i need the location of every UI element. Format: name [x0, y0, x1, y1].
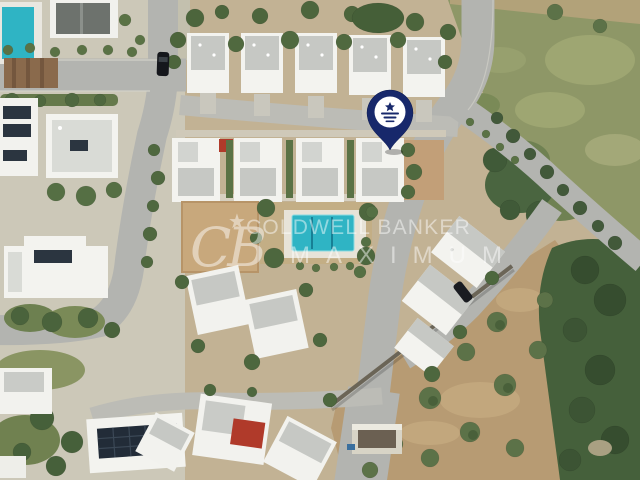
row2-villa	[172, 138, 220, 202]
car	[157, 52, 170, 76]
watermark-line2: MAXIMUM	[290, 242, 518, 269]
watermark-star-icon: ★	[228, 211, 246, 233]
row2-villa	[234, 138, 282, 202]
row1-villa	[241, 33, 283, 93]
row1-villa	[295, 33, 337, 93]
ruin-structure	[347, 424, 402, 454]
row2-villa	[296, 138, 344, 202]
row1-villa	[187, 33, 229, 93]
villa-row-second	[172, 130, 446, 202]
pergola	[4, 58, 58, 88]
solar-villa-left	[0, 98, 38, 176]
villa-red-awning	[192, 394, 272, 465]
aerial-photo: CB ★ COLDWELL BANKER MAXIMUM	[0, 0, 640, 480]
villa-b	[46, 114, 118, 178]
row1-villa	[403, 37, 445, 97]
row1-villa	[349, 35, 391, 95]
watermark-line1: COLDWELL BANKER	[246, 216, 471, 239]
pin-villa	[356, 138, 404, 202]
watermark: CB ★ COLDWELL BANKER MAXIMUM	[190, 211, 518, 279]
house-dark-roof	[50, 0, 118, 38]
